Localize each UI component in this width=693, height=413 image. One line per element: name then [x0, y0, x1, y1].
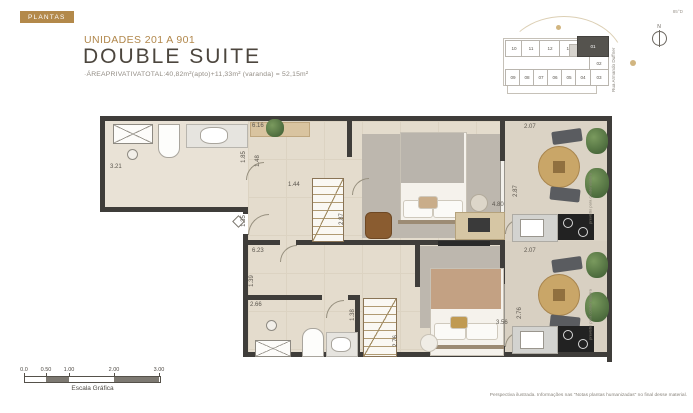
balcony1-table-center — [553, 161, 565, 173]
balcony2-sink — [520, 331, 544, 349]
burner — [578, 339, 588, 349]
burner — [563, 218, 573, 228]
burner — [563, 330, 573, 340]
bed2-blanket — [431, 269, 501, 309]
street-name-label: Rua Armando Duffner — [611, 48, 616, 92]
wall — [243, 207, 248, 214]
shower-head-icon — [127, 149, 138, 160]
dimension-label: 2.87 — [339, 213, 345, 225]
keyplan-unit-12: 12 — [539, 40, 561, 57]
keyplan-unit-11: 11 — [521, 40, 541, 57]
condenser-note: previsão para condensadora — [588, 169, 593, 229]
dimension-label: 2.66 — [250, 302, 262, 308]
graphic-scale: 0.00.501.002.003.00 Escala Gráfica — [24, 367, 174, 397]
dimension-label: 4.80 — [492, 202, 504, 208]
floor-plan: previsão para condensadora previsão para… — [100, 116, 612, 362]
bed2-headboard — [428, 345, 504, 349]
ottoman — [420, 334, 438, 352]
accent-pillow — [418, 196, 438, 209]
dimension-label: 1.48 — [255, 155, 261, 167]
compass-circle — [652, 31, 667, 46]
pillow — [466, 323, 498, 340]
tree-dot — [556, 25, 561, 30]
private-area-text: ·ÁREAPRIVATIVATOTAL:40,82m²(apto)+11,33m… — [84, 71, 308, 78]
dimension-label: 2.07 — [524, 248, 536, 254]
balcony2-table-center — [553, 289, 565, 301]
pouf-chair — [365, 212, 392, 239]
condenser-note: previsão para condensadora — [588, 285, 593, 345]
plant — [586, 252, 608, 278]
dimension-label: 1.39 — [249, 275, 255, 287]
wall — [347, 121, 352, 157]
footer-disclaimer: Perspectiva ilustrada. Informações nas "… — [490, 393, 687, 398]
keyplan-unit-01: 01 — [577, 36, 609, 57]
dimension-label: 2.76 — [393, 335, 399, 347]
shower-box — [255, 340, 291, 357]
corner-note: 85°D — [673, 9, 683, 14]
wall — [607, 116, 612, 362]
dimension-label: 3.56 — [496, 320, 508, 326]
closet2 — [363, 298, 397, 357]
balcony1-sink — [520, 219, 544, 237]
dimension-label: 2.07 — [524, 124, 536, 130]
burner — [578, 227, 588, 237]
compass-needle — [659, 30, 660, 47]
plant — [266, 119, 284, 137]
dimension-label: 6.16 — [252, 123, 264, 129]
brochure-page: PLANTAS UNIDADES 201 A 901 DOUBLE SUITE … — [0, 0, 693, 413]
dimension-label: 6.23 — [252, 248, 264, 254]
dimension-label: 1.44 — [288, 182, 300, 188]
dimension-label: 1.38 — [350, 309, 356, 321]
plant — [586, 128, 608, 154]
scale-tick-mark — [69, 373, 70, 377]
dimension-label: 1.35 — [241, 215, 247, 227]
sink-basin — [331, 337, 351, 352]
scale-tick-mark — [159, 373, 160, 377]
scale-filled-segment — [114, 377, 159, 382]
dimension-label: 1.85 — [241, 151, 247, 163]
toilet — [158, 124, 180, 158]
accent-pillow — [450, 316, 468, 329]
wall — [248, 240, 280, 245]
wall — [500, 116, 505, 161]
shower-box — [113, 124, 153, 144]
wall — [100, 116, 612, 121]
plantas-badge: PLANTAS — [20, 11, 74, 23]
keyplan-unit-03: 03 — [589, 69, 609, 86]
toilet — [302, 328, 324, 357]
wall — [100, 207, 248, 212]
scale-filled-segment — [46, 377, 69, 382]
page-title: DOUBLE SUITE — [83, 45, 261, 69]
compass-icon: N — [650, 24, 668, 46]
side-table — [470, 194, 488, 212]
wall — [248, 295, 322, 300]
shower-head-icon — [266, 320, 277, 331]
dimension-label: 3.21 — [110, 164, 122, 170]
bed1-blanket — [401, 133, 464, 183]
tv — [438, 241, 490, 246]
scale-tick-mark — [24, 373, 25, 377]
dimension-label: 2.87 — [513, 185, 519, 197]
keyplan-unit-04: 04 — [575, 69, 591, 86]
wall — [100, 116, 105, 212]
laptop — [468, 218, 490, 232]
closet1 — [312, 178, 344, 242]
dimension-label: 2.76 — [517, 307, 523, 319]
scale-label: Escala Gráfica — [24, 385, 161, 392]
wall — [415, 245, 420, 287]
sink-basin — [200, 127, 228, 144]
